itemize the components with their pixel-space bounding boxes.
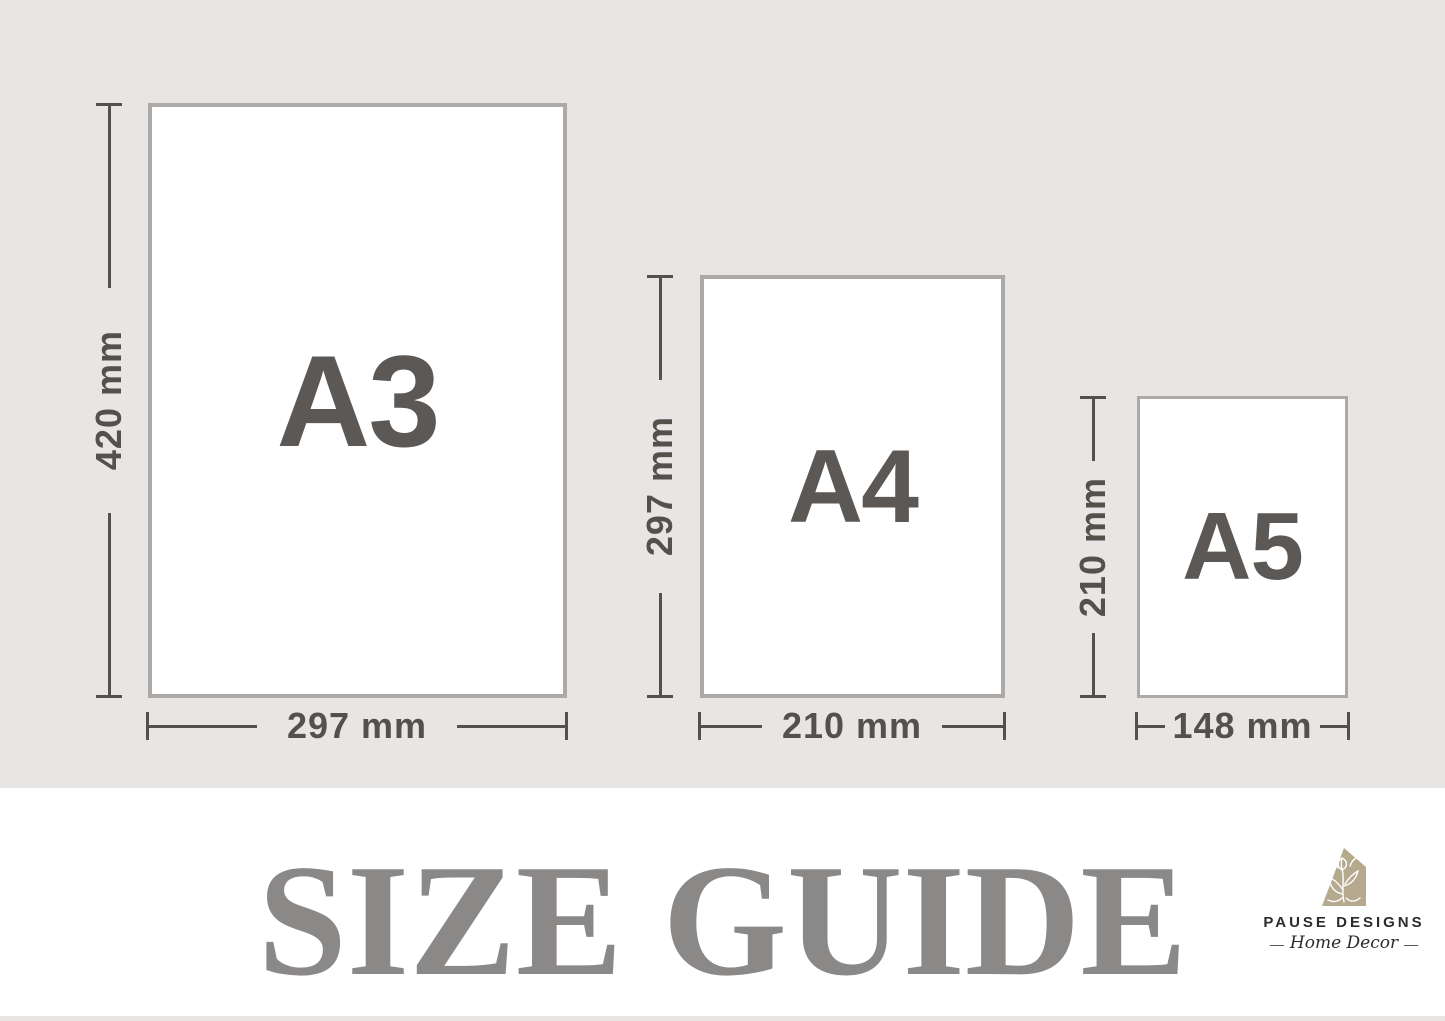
dimension-tick (96, 695, 122, 698)
dimension-line-segment (108, 106, 111, 288)
a4-height-label: 297 mm (642, 416, 678, 556)
a4-width-label: 210 mm (782, 708, 922, 744)
dimension-line-segment (659, 593, 662, 695)
dimension-line-segment (942, 725, 1003, 728)
dimension-tick (1003, 712, 1006, 740)
tagline-dash: — (1270, 937, 1284, 951)
a5-height-label: 210 mm (1075, 477, 1111, 617)
paper-a4-label: A4 (788, 435, 917, 539)
paper-a5: A5 (1137, 396, 1348, 698)
a5-width-label: 148 mm (1172, 708, 1312, 744)
a5-height-dimension: 210 mm (1080, 396, 1106, 698)
dimension-line-segment (149, 725, 257, 728)
footer-band: SIZE GUIDE PAUSE DESIGNS (0, 788, 1445, 1016)
size-guide-title: SIZE GUIDE (0, 824, 1445, 1016)
dimension-line-segment (1092, 399, 1095, 461)
bottom-strip (0, 1016, 1445, 1021)
dimension-tick (1347, 712, 1350, 740)
dimension-line-segment (1092, 633, 1095, 695)
a3-width-dimension: 297 mm (146, 711, 568, 741)
a4-width-dimension: 210 mm (698, 711, 1006, 741)
a4-height-dimension: 297 mm (647, 275, 673, 698)
dimension-line-segment (701, 725, 762, 728)
tagline-text: Home Decor (1290, 935, 1398, 952)
brand-logo: PAUSE DESIGNS — Home Decor — (1254, 848, 1434, 952)
tagline-dash: — (1404, 937, 1418, 951)
brand-tagline: — Home Decor — (1254, 935, 1434, 952)
dimension-tick (565, 712, 568, 740)
paper-a5-label: A5 (1182, 499, 1303, 595)
dimension-line-segment (659, 278, 662, 380)
a3-height-dimension: 420 mm (96, 103, 122, 698)
brand-name: PAUSE DESIGNS (1254, 914, 1434, 931)
dimension-line-segment (1138, 725, 1165, 728)
dimension-line-segment (1320, 725, 1347, 728)
a3-width-label: 297 mm (287, 708, 427, 744)
paper-a3-label: A3 (276, 336, 438, 466)
size-guide-page: A3 420 mm 297 mm A4 297 mm 210 mm A5 (0, 0, 1445, 1021)
house-botanical-icon (1322, 848, 1366, 906)
dimension-tick (1080, 695, 1106, 698)
dimension-line-segment (457, 725, 565, 728)
paper-a4: A4 (700, 275, 1005, 698)
paper-a3: A3 (148, 103, 567, 698)
dimension-line-segment (108, 513, 111, 695)
a3-height-label: 420 mm (91, 330, 127, 470)
a5-width-dimension: 148 mm (1135, 711, 1350, 741)
dimension-tick (647, 695, 673, 698)
